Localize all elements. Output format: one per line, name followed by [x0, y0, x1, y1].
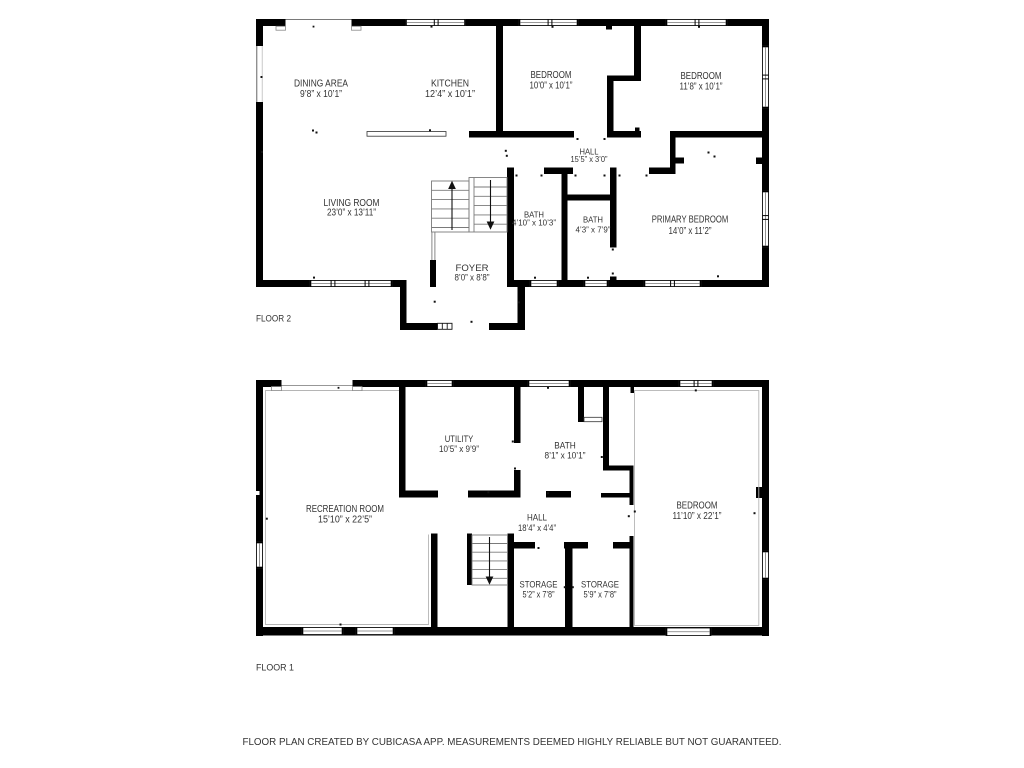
- svg-text:BEDROOM: BEDROOM: [677, 501, 718, 512]
- svg-text:HALL: HALL: [527, 513, 547, 523]
- svg-text:FLOOR 1: FLOOR 1: [256, 662, 294, 673]
- svg-text:23’0” x 13’11”: 23’0” x 13’11”: [327, 208, 376, 219]
- svg-text:5’9” x 7’8”: 5’9” x 7’8”: [584, 590, 617, 600]
- svg-text:DINING AREA: DINING AREA: [294, 79, 348, 90]
- svg-text:8’0” x 8’8”: 8’0” x 8’8”: [455, 273, 490, 283]
- svg-text:10’5” x 9’9”: 10’5” x 9’9”: [439, 444, 479, 454]
- svg-text:STORAGE: STORAGE: [520, 579, 558, 589]
- svg-text:4’3” x 7’9”: 4’3” x 7’9”: [576, 225, 611, 234]
- svg-text:UTILITY: UTILITY: [445, 434, 474, 444]
- svg-text:BATH: BATH: [554, 440, 576, 450]
- svg-text:4’10” x 10’3”: 4’10” x 10’3”: [512, 218, 556, 227]
- svg-text:14’0” x 11’2”: 14’0” x 11’2”: [669, 226, 712, 237]
- svg-text:RECREATION ROOM: RECREATION ROOM: [306, 504, 384, 515]
- svg-text:FOYER: FOYER: [456, 263, 489, 273]
- svg-text:FLOOR 2: FLOOR 2: [256, 314, 291, 325]
- svg-text:15’10” x 22’5”: 15’10” x 22’5”: [318, 514, 372, 525]
- svg-text:FLOOR PLAN CREATED BY CUBICASA: FLOOR PLAN CREATED BY CUBICASA APP. MEAS…: [243, 737, 782, 748]
- svg-text:11’8” x 10’1”: 11’8” x 10’1”: [680, 81, 723, 92]
- svg-text:8’1” x 10’1”: 8’1” x 10’1”: [545, 450, 586, 460]
- svg-text:BATH: BATH: [583, 215, 603, 224]
- svg-text:5’2” x 7’8”: 5’2” x 7’8”: [523, 590, 555, 600]
- svg-text:11’10” x 22’1”: 11’10” x 22’1”: [673, 511, 722, 522]
- svg-text:18’4” x 4’4”: 18’4” x 4’4”: [518, 523, 556, 533]
- svg-text:15’5” x 3’0”: 15’5” x 3’0”: [571, 155, 608, 164]
- svg-text:KITCHEN: KITCHEN: [431, 79, 469, 90]
- svg-text:BEDROOM: BEDROOM: [681, 71, 722, 82]
- svg-text:BEDROOM: BEDROOM: [531, 70, 572, 81]
- svg-text:PRIMARY BEDROOM: PRIMARY BEDROOM: [652, 215, 729, 226]
- svg-text:9’8” x 10’1”: 9’8” x 10’1”: [300, 89, 342, 100]
- svg-text:10’0” x 10’1”: 10’0” x 10’1”: [530, 80, 573, 91]
- svg-text:12’4” x 10’1”: 12’4” x 10’1”: [425, 89, 475, 100]
- svg-text:STORAGE: STORAGE: [581, 579, 619, 589]
